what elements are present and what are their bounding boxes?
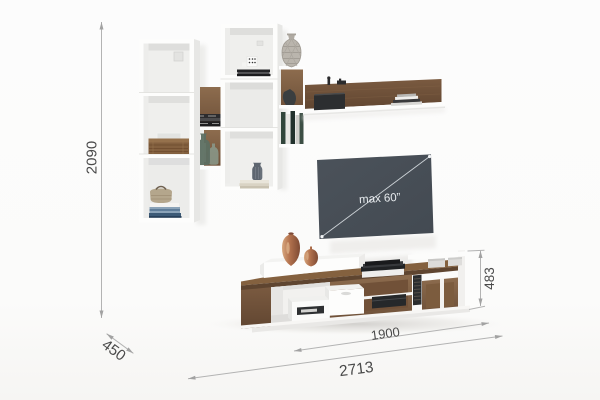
svg-text:max 60”: max 60” <box>359 192 401 207</box>
svg-text:2090: 2090 <box>84 141 101 174</box>
svg-text:483: 483 <box>482 267 497 290</box>
